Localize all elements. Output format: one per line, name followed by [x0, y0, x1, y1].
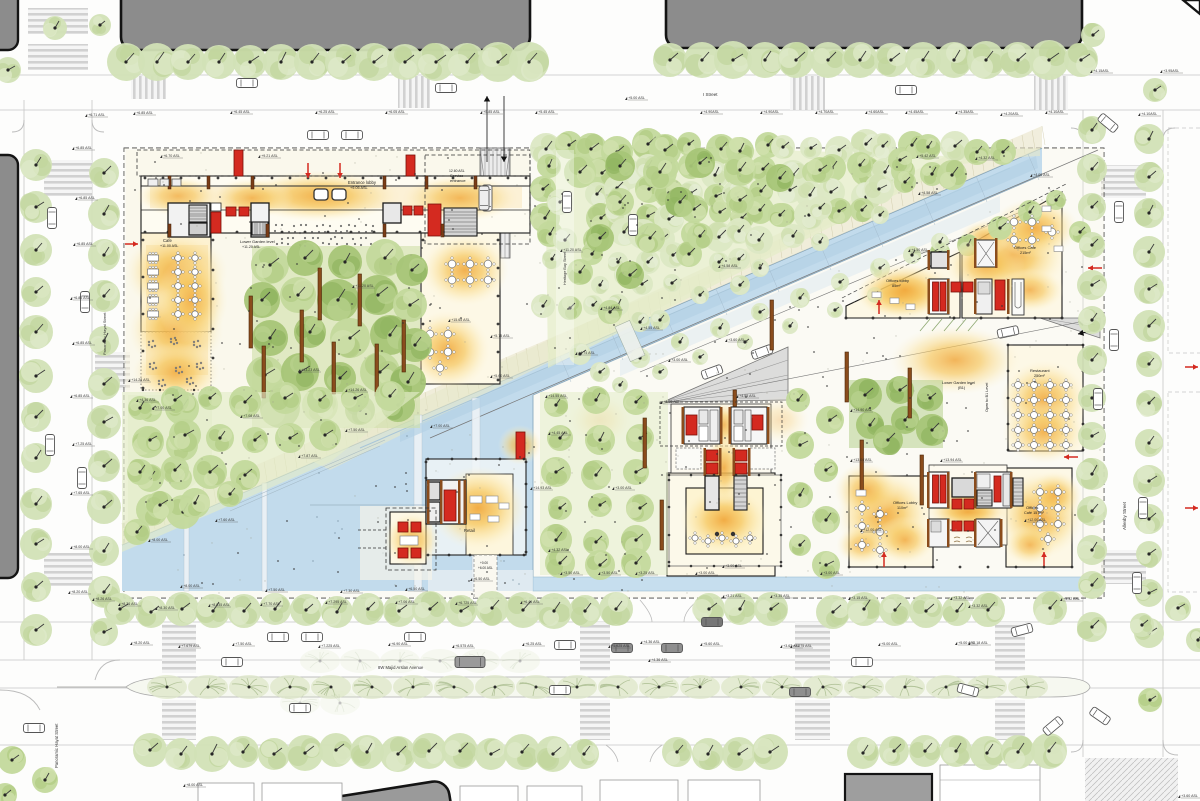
svg-text:+7.65 ASL: +7.65 ASL [73, 491, 90, 495]
svg-text:+7.295 ASL: +7.295 ASL [328, 600, 347, 604]
svg-text:+4.36 ASL: +4.36 ASL [643, 640, 660, 644]
svg-text:+11.20 ASL: +11.20 ASL [563, 248, 581, 252]
svg-text:+9.21 ASL: +9.21 ASL [261, 154, 278, 158]
svg-text:+4.15ASL: +4.15ASL [1093, 69, 1109, 73]
svg-text:+3.60 ASL: +3.60 ASL [1181, 794, 1198, 798]
svg-text:+7.60 ASL: +7.60 ASL [218, 518, 235, 522]
svg-text:+8.30 ASL: +8.30 ASL [158, 606, 175, 610]
svg-text:Cafe: Cafe [163, 238, 173, 243]
svg-text:+14.93 ASL: +14.93 ASL [533, 486, 552, 490]
svg-text:Entrance lobby: Entrance lobby [348, 180, 377, 185]
svg-text:Café 157m²: Café 157m² [1024, 511, 1045, 515]
svg-text:+5.85 ASL: +5.85 ASL [483, 110, 500, 114]
svg-text:+5.42 ASL: +5.42 ASL [919, 154, 936, 158]
svg-text:+3.95ASL: +3.95ASL [1163, 69, 1179, 73]
svg-text:+7.00 ASL: +7.00 ASL [433, 424, 450, 428]
svg-text:Lower Garden level: Lower Garden level [942, 381, 975, 385]
svg-text:+7.25 ASL: +7.25 ASL [75, 442, 92, 446]
svg-text:+3.00 ASL: +3.00 ASL [671, 358, 688, 362]
svg-text:+13.94 ASL: +13.94 ASL [943, 458, 962, 462]
svg-text:+4.55 ASL: +4.55 ASL [739, 394, 756, 398]
svg-text:Open to B1 Level: Open to B1 Level [985, 383, 989, 412]
svg-text:+8.00 ASL: +8.00 ASL [183, 584, 200, 588]
svg-text:+14.28 ASL: +14.28 ASL [131, 378, 150, 382]
svg-text:+6.25 ASL: +6.25 ASL [318, 110, 335, 114]
svg-text:+3.25 ASL: +3.25 ASL [638, 571, 655, 575]
svg-text:+4.58 ASL: +4.58 ASL [921, 191, 938, 195]
svg-text:+8.20 ASL: +8.20 ASL [71, 590, 88, 594]
svg-text:+14.90 ASL: +14.90 ASL [853, 408, 872, 412]
svg-text:+8.26 ASL: +8.26 ASL [95, 597, 112, 601]
svg-text:+6.85 ASL: +6.85 ASL [76, 242, 93, 246]
svg-text:+0.00: +0.00 [480, 561, 488, 565]
svg-text:+6.575 ASL: +6.575 ASL [455, 644, 474, 648]
svg-text:+13.23 ASL: +13.23 ASL [301, 368, 320, 372]
svg-text:+14.26 ASL: +14.26 ASL [348, 388, 367, 392]
svg-text:+4.36 ASL: +4.36 ASL [139, 398, 156, 402]
svg-text:+6.05 ASL: +6.05 ASL [388, 110, 405, 114]
svg-text:+6.46 ASL: +6.46 ASL [523, 600, 540, 604]
svg-text:+3.00 ASL: +3.00 ASL [615, 486, 632, 490]
svg-text:+11.20 ASL: +11.20 ASL [242, 245, 260, 249]
svg-text:+7.679 ASL: +7.679 ASL [181, 644, 200, 648]
svg-text:Lower Garden level: Lower Garden level [240, 239, 275, 244]
svg-text:+4.90ASL: +4.90ASL [703, 110, 719, 114]
svg-text:+8.00 ASL: +8.00 ASL [186, 783, 203, 787]
svg-text:+4.36 ASL: +4.36 ASL [651, 658, 668, 662]
svg-text:8W Majid Arslan Avenue: 8W Majid Arslan Avenue [378, 665, 424, 670]
svg-text:+12.00 ASL: +12.00 ASL [1027, 518, 1046, 522]
svg-text:+8.36 ASL: +8.36 ASL [121, 602, 138, 606]
svg-text:+3.32 ASL: +3.32 ASL [953, 596, 970, 600]
svg-text:+6.85 ASL: +6.85 ASL [73, 394, 90, 398]
svg-text:+4.32 ASL: +4.32 ASL [551, 548, 568, 552]
svg-text:+4.58 ASL: +4.58 ASL [721, 264, 738, 268]
svg-text:+4.70ASL: +4.70ASL [818, 110, 834, 114]
svg-text:+4.20ASL: +4.20ASL [1003, 112, 1019, 116]
svg-text:+3.21 ASL: +3.21 ASL [725, 594, 742, 598]
svg-text:+6.45 ASL: +6.45 ASL [233, 110, 250, 114]
svg-text:+7.70 ASL: +7.70 ASL [263, 602, 280, 606]
svg-text:+3.60 ASL: +3.60 ASL [728, 338, 745, 342]
svg-text:+7.225 ASL: +7.225 ASL [321, 644, 340, 648]
svg-text:+6.85 ASL: +6.85 ASL [75, 341, 92, 345]
svg-text:+5.925 ASL: +5.925 ASL [611, 644, 630, 648]
svg-text:+3.18 ASL: +3.18 ASL [971, 641, 988, 645]
svg-text:+7.50 ASL: +7.50 ASL [268, 588, 285, 592]
svg-text:+3.50 ASL: +3.50 ASL [601, 571, 618, 575]
svg-text:+4.60 ASL: +4.60 ASL [663, 400, 680, 404]
svg-text:+6.85 ASL: +6.85 ASL [73, 296, 90, 300]
svg-text:+4.35ASL: +4.35ASL [958, 110, 974, 114]
svg-text:+4.55 ASL: +4.55 ASL [643, 326, 660, 330]
svg-text:Offices Lobby: Offices Lobby [893, 500, 917, 505]
svg-text:+3.32 ASL: +3.32 ASL [1063, 597, 1080, 601]
svg-text:+4.32 ASL: +4.32 ASL [978, 156, 995, 160]
svg-text:+4.10ASL: +4.10ASL [1048, 110, 1064, 114]
svg-text:+4.84 ASL: +4.84 ASL [603, 306, 620, 310]
svg-text:+8.035 ASL: +8.035 ASL [211, 603, 230, 607]
svg-text:+12.00 ASL: +12.00 ASL [863, 528, 882, 532]
svg-text:Panoramic Hayat Street: Panoramic Hayat Street [102, 312, 107, 355]
svg-text:215m²: 215m² [1020, 251, 1031, 255]
svg-text:Restaurant: Restaurant [1030, 368, 1050, 373]
svg-text:Retail: Retail [464, 528, 475, 533]
svg-text:85m²: 85m² [892, 284, 901, 288]
svg-text:+5.75 ASL: +5.75 ASL [493, 334, 510, 338]
svg-text:+5.00 ASL: +5.00 ASL [628, 96, 645, 100]
svg-text:+7.30 ASL: +7.30 ASL [343, 589, 360, 593]
svg-text:Offices: Offices [1026, 505, 1038, 510]
svg-text:+3.15 ASL: +3.15 ASL [851, 596, 868, 600]
svg-text:I Street: I Street [703, 92, 718, 97]
svg-text:+6.85 ASL: +6.85 ASL [75, 146, 92, 150]
svg-text:+13.04 ASL: +13.04 ASL [853, 458, 872, 462]
svg-text:+4.45ASL: +4.45ASL [908, 110, 924, 114]
svg-text:+6.90 ASL: +6.90 ASL [391, 642, 408, 646]
svg-text:+7.06 ASL: +7.06 ASL [398, 600, 415, 604]
svg-text:+7.00 ASL: +7.00 ASL [155, 406, 172, 410]
svg-text:+6.71 ASL: +6.71 ASL [88, 113, 105, 117]
svg-text:+4.74 ASL: +4.74 ASL [578, 351, 595, 355]
svg-text:+15.65 ASL: +15.65 ASL [451, 318, 470, 322]
svg-text:Heritage Bay Street: Heritage Bay Street [563, 251, 567, 285]
svg-text:+8.20 ASL: +8.20 ASL [133, 641, 150, 645]
svg-text:+6.25 ASL: +6.25 ASL [525, 642, 542, 646]
svg-text:+6.00 ASL: +6.00 ASL [478, 566, 493, 570]
svg-text:+14.55 ASL: +14.55 ASL [548, 394, 567, 398]
svg-text:+8.00 ASL: +8.00 ASL [151, 538, 168, 542]
svg-text:+5.60 ASL: +5.60 ASL [703, 642, 720, 646]
svg-text:+5.00 ASL: +5.00 ASL [881, 642, 898, 646]
svg-text:+9.05 ASL: +9.05 ASL [350, 186, 368, 190]
svg-text:+7.08 ASL: +7.08 ASL [243, 414, 260, 418]
svg-text:Panoramic Hayat Street: Panoramic Hayat Street [54, 723, 59, 768]
svg-text:250m²: 250m² [1034, 374, 1045, 378]
svg-text:+11.00 ASL: +11.00 ASL [160, 244, 178, 248]
svg-text:+7.50 ASL: +7.50 ASL [235, 642, 252, 646]
svg-text:110m²: 110m² [897, 506, 908, 510]
svg-text:+5.60 ASL: +5.60 ASL [493, 374, 510, 378]
svg-text:+6.725 ASL: +6.725 ASL [458, 601, 477, 605]
svg-text:+11.20 ASL: +11.20 ASL [355, 284, 373, 288]
svg-text:+3.50 ASL: +3.50 ASL [563, 571, 580, 575]
svg-text:Offices lobby: Offices lobby [886, 278, 909, 283]
svg-text:+3.35 ASL: +3.35 ASL [773, 594, 790, 598]
svg-text:+4.50 ASL: +4.50 ASL [911, 248, 928, 252]
svg-text:+4.00 ASL: +4.00 ASL [1033, 173, 1050, 177]
svg-text:+7.87 ASL: +7.87 ASL [301, 454, 318, 458]
svg-text:+6.70 ASL: +6.70 ASL [163, 154, 180, 158]
svg-text:+7.50 ASL: +7.50 ASL [348, 428, 365, 432]
svg-text:+8.00 ASL: +8.00 ASL [73, 545, 90, 549]
svg-text:+3.32 ASL: +3.32 ASL [971, 604, 988, 608]
svg-text:+3.62 ASL: +3.62 ASL [783, 644, 800, 648]
svg-text:+4.90ASL: +4.90ASL [763, 110, 779, 114]
svg-text:+6.50 ASL: +6.50 ASL [473, 577, 490, 581]
svg-text:entrance: entrance [450, 178, 466, 183]
svg-text:+4.60ASL: +4.60ASL [868, 110, 884, 114]
svg-text:+5.45 ASL: +5.45 ASL [538, 110, 555, 114]
svg-text:+6.85 ASL: +6.85 ASL [78, 196, 95, 200]
svg-text:+4.45 ASL: +4.45 ASL [551, 431, 568, 435]
svg-text:+3.00 ASL: +3.00 ASL [698, 571, 715, 575]
svg-text:+4.10ASL: +4.10ASL [1141, 112, 1157, 116]
svg-text:+3.00 ASL: +3.00 ASL [823, 571, 840, 575]
svg-text:(B1): (B1) [958, 386, 966, 390]
svg-text:+3.00 ASL: +3.00 ASL [725, 564, 742, 568]
svg-text:+6.50 ASL: +6.50 ASL [408, 587, 425, 591]
svg-text:+6.85 ASL: +6.85 ASL [136, 111, 153, 115]
svg-text:Allenby Street: Allenby Street [1122, 501, 1127, 530]
svg-text:Offices Cafe: Offices Cafe [1014, 245, 1037, 250]
